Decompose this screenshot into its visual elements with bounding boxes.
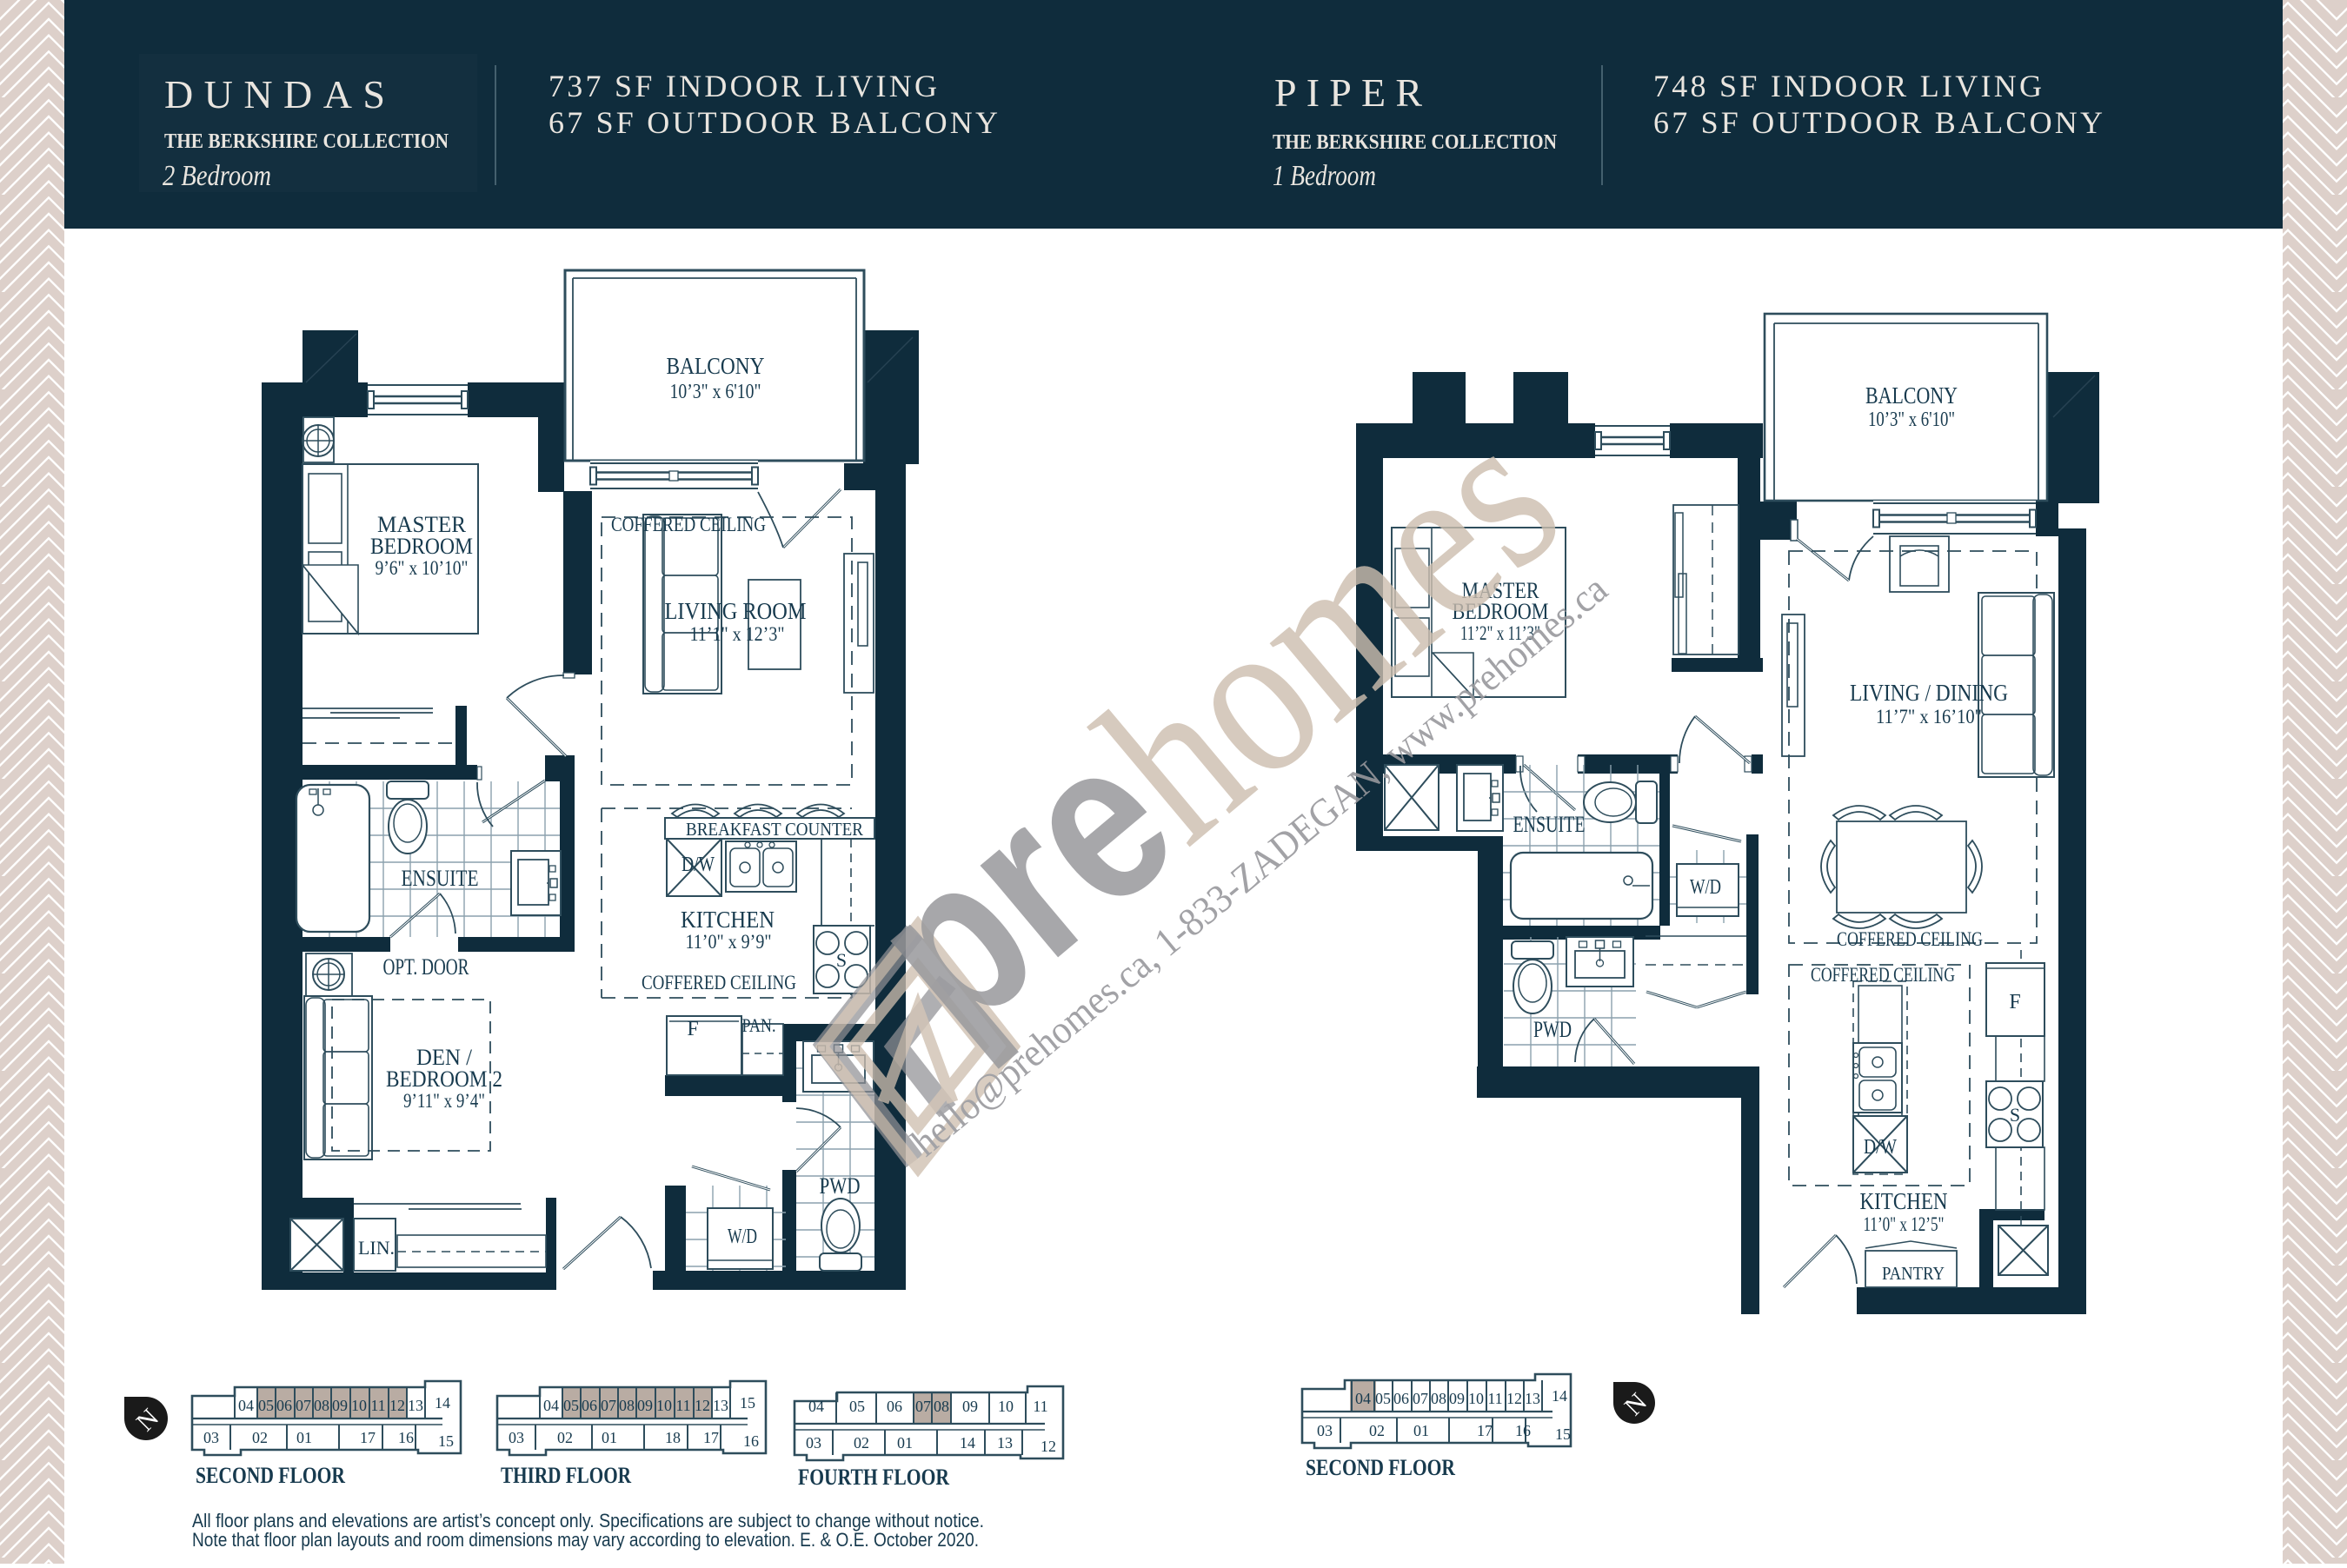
svg-text:04: 04 (543, 1397, 559, 1414)
svg-text:PANTRY: PANTRY (1882, 1263, 1945, 1284)
svg-text:737 SF INDOOR LIVING: 737 SF INDOOR LIVING (549, 69, 937, 103)
svg-text:BREAKFAST COUNTER: BREAKFAST COUNTER (686, 819, 863, 840)
svg-text:17: 17 (360, 1429, 376, 1446)
svg-text:15: 15 (1555, 1425, 1571, 1443)
svg-text:BEDROOM 2: BEDROOM 2 (386, 1066, 502, 1092)
svg-text:09: 09 (637, 1397, 653, 1414)
svg-text:13: 13 (1525, 1390, 1540, 1407)
svg-text:10: 10 (998, 1398, 1014, 1415)
svg-text:07: 07 (915, 1398, 931, 1415)
svg-text:11: 11 (370, 1397, 385, 1414)
svg-text:15: 15 (740, 1394, 755, 1412)
svg-text:67 SF OUTDOOR BALCONY: 67 SF OUTDOOR BALCONY (1653, 105, 2103, 140)
svg-text:17: 17 (703, 1429, 719, 1446)
svg-text:F: F (2009, 991, 2020, 1013)
svg-text:OPT. DOOR: OPT. DOOR (383, 954, 469, 980)
svg-text:SECOND FLOOR: SECOND FLOOR (196, 1463, 345, 1488)
svg-text:10’3" x 6'10": 10’3" x 6'10" (670, 381, 761, 403)
svg-text:PWD: PWD (820, 1173, 861, 1199)
svg-text:COFFERED CEILING: COFFERED CEILING (1837, 928, 1983, 950)
svg-text:1 Bedroom: 1 Bedroom (1273, 160, 1376, 192)
svg-text:04: 04 (238, 1397, 254, 1414)
svg-text:05: 05 (563, 1397, 579, 1414)
svg-text:PAN.: PAN. (742, 1014, 776, 1036)
svg-text:11’7" x 16’10": 11’7" x 16’10" (1876, 706, 1982, 728)
svg-text:06: 06 (887, 1398, 902, 1415)
svg-text:12: 12 (1041, 1438, 1056, 1455)
svg-text:2 Bedroom: 2 Bedroom (163, 160, 271, 192)
svg-text:11: 11 (675, 1397, 690, 1414)
svg-text:THIRD FLOOR: THIRD FLOOR (501, 1463, 631, 1488)
svg-text:03: 03 (509, 1429, 524, 1446)
svg-text:11’0" x 9’9": 11’0" x 9’9" (686, 931, 772, 953)
svg-text:09: 09 (1449, 1390, 1465, 1407)
svg-text:13: 13 (997, 1434, 1013, 1452)
svg-text:12: 12 (695, 1397, 710, 1414)
svg-text:W/D: W/D (1690, 876, 1721, 899)
svg-text:Note that floor plan layouts a: Note that floor plan layouts and room di… (192, 1529, 979, 1551)
svg-text:05: 05 (1375, 1390, 1391, 1407)
svg-text:SECOND FLOOR: SECOND FLOOR (1306, 1455, 1455, 1480)
svg-text:16: 16 (1515, 1422, 1531, 1439)
svg-text:F: F (687, 1018, 698, 1040)
svg-text:01: 01 (296, 1429, 312, 1446)
svg-text:FOURTH FLOOR: FOURTH FLOOR (798, 1465, 949, 1490)
svg-text:D/W: D/W (1864, 1136, 1897, 1159)
svg-text:S: S (2010, 1104, 2020, 1126)
svg-text:BEDROOM: BEDROOM (370, 534, 473, 559)
svg-text:LIN.: LIN. (358, 1237, 395, 1259)
svg-text:10: 10 (1468, 1390, 1484, 1407)
svg-text:07: 07 (1413, 1390, 1428, 1407)
svg-text:08: 08 (619, 1397, 635, 1414)
svg-text:16: 16 (743, 1432, 759, 1450)
svg-text:ENSUITE: ENSUITE (1513, 812, 1586, 837)
svg-text:LIVING / DINING: LIVING / DINING (1850, 680, 2008, 706)
svg-text:W/D: W/D (728, 1226, 757, 1248)
svg-text:S: S (836, 949, 847, 971)
svg-text:03: 03 (203, 1429, 219, 1446)
svg-text:05: 05 (849, 1398, 865, 1415)
svg-text:07: 07 (296, 1397, 311, 1414)
svg-text:07: 07 (601, 1397, 616, 1414)
svg-text:18: 18 (665, 1429, 681, 1446)
svg-text:10’3" x 6'10": 10’3" x 6'10" (1868, 409, 1955, 431)
svg-text:13: 13 (408, 1397, 423, 1414)
svg-text:11: 11 (1487, 1390, 1502, 1407)
svg-text:COFFERED CEILING: COFFERED CEILING (642, 972, 796, 993)
svg-text:11’1" x 12’3": 11’1" x 12’3" (690, 623, 785, 645)
svg-text:08: 08 (314, 1397, 329, 1414)
svg-text:01: 01 (897, 1434, 913, 1452)
svg-text:PIPER: PIPER (1274, 70, 1422, 115)
svg-text:09: 09 (332, 1397, 348, 1414)
svg-text:16: 16 (398, 1429, 414, 1446)
svg-text:COFFERED CEILING: COFFERED CEILING (1811, 964, 1955, 986)
svg-text:12: 12 (389, 1397, 405, 1414)
svg-text:67 SF OUTDOOR BALCONY: 67 SF OUTDOOR BALCONY (549, 105, 998, 140)
svg-text:04: 04 (1355, 1390, 1371, 1407)
svg-text:15: 15 (438, 1432, 454, 1450)
svg-text:PWD: PWD (1533, 1017, 1572, 1042)
svg-text:THE BERKSHIRE COLLECTION: THE BERKSHIRE COLLECTION (1273, 131, 1558, 154)
svg-text:06: 06 (582, 1397, 597, 1414)
svg-text:08: 08 (934, 1398, 949, 1415)
svg-text:02: 02 (854, 1434, 869, 1452)
svg-text:9’11" x 9’4": 9’11" x 9’4" (403, 1090, 485, 1112)
svg-text:05: 05 (258, 1397, 274, 1414)
svg-text:08: 08 (1431, 1390, 1446, 1407)
svg-text:BALCONY: BALCONY (1865, 382, 1958, 409)
svg-text:11’0" x 12’5": 11’0" x 12’5" (1864, 1213, 1945, 1235)
svg-text:11: 11 (1033, 1398, 1047, 1415)
svg-text:BALCONY: BALCONY (667, 353, 765, 379)
svg-text:17: 17 (1477, 1422, 1493, 1439)
svg-text:10: 10 (351, 1397, 367, 1414)
svg-text:10: 10 (656, 1397, 672, 1414)
svg-text:02: 02 (1369, 1422, 1385, 1439)
svg-text:09: 09 (962, 1398, 978, 1415)
svg-text:02: 02 (252, 1429, 268, 1446)
svg-text:D/W: D/W (681, 854, 715, 876)
svg-text:13: 13 (713, 1397, 728, 1414)
svg-text:14: 14 (435, 1394, 450, 1412)
svg-text:KITCHEN: KITCHEN (681, 907, 775, 933)
svg-text:03: 03 (806, 1434, 821, 1452)
svg-text:06: 06 (1393, 1390, 1409, 1407)
svg-text:COFFERED CEILING: COFFERED CEILING (611, 514, 766, 535)
svg-text:14: 14 (960, 1434, 975, 1452)
svg-text:THE BERKSHIRE COLLECTION: THE BERKSHIRE COLLECTION (164, 130, 449, 153)
svg-text:01: 01 (602, 1429, 617, 1446)
svg-text:9’6" x 10’10": 9’6" x 10’10" (376, 557, 469, 579)
svg-text:03: 03 (1317, 1422, 1333, 1439)
svg-text:06: 06 (276, 1397, 292, 1414)
svg-text:ENSUITE: ENSUITE (402, 866, 479, 891)
svg-text:14: 14 (1552, 1387, 1567, 1405)
svg-text:LIVING ROOM: LIVING ROOM (665, 598, 807, 624)
svg-text:748 SF INDOOR LIVING: 748 SF INDOOR LIVING (1653, 69, 2042, 103)
svg-text:01: 01 (1413, 1422, 1429, 1439)
svg-text:02: 02 (557, 1429, 573, 1446)
svg-text:04: 04 (808, 1398, 824, 1415)
svg-text:KITCHEN: KITCHEN (1860, 1188, 1948, 1214)
svg-text:12: 12 (1506, 1390, 1522, 1407)
